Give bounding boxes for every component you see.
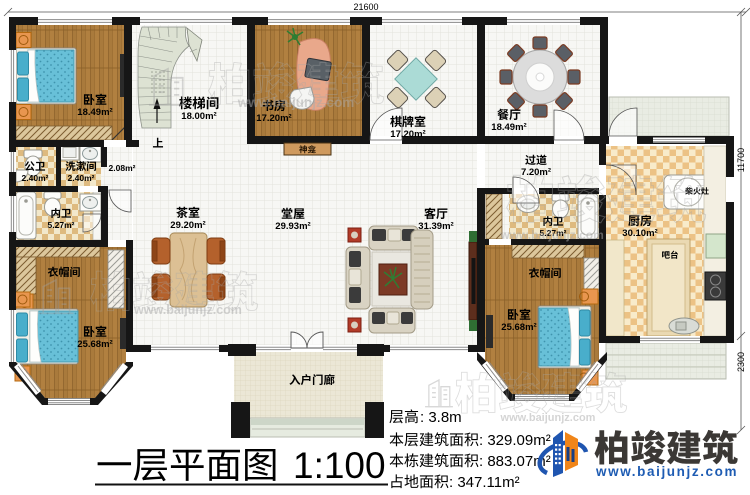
svg-text:17.20m²: 17.20m² [256, 113, 291, 124]
svg-text:18.49m²: 18.49m² [77, 107, 112, 118]
svg-text:2300: 2300 [736, 352, 746, 372]
svg-text:21600: 21600 [353, 2, 378, 12]
svg-text:5.27m²: 5.27m² [48, 220, 75, 230]
svg-text:2.40m²: 2.40m² [22, 173, 49, 183]
svg-text:www.baijunjz.com: www.baijunjz.com [595, 464, 738, 479]
svg-text:www.baijunjz.com: www.baijunjz.com [500, 412, 596, 424]
svg-text:: 3.8m: : 3.8m [420, 409, 462, 426]
svg-text:30.10m²: 30.10m² [622, 228, 657, 239]
svg-text:29.20m²: 29.20m² [170, 220, 205, 231]
svg-text:www.baijunjz.com: www.baijunjz.com [237, 95, 355, 110]
svg-text:18.00m²: 18.00m² [181, 111, 216, 122]
svg-text:18.49m²: 18.49m² [491, 122, 526, 133]
svg-text:11700: 11700 [736, 148, 746, 172]
svg-text:17.20m²: 17.20m² [390, 129, 425, 140]
svg-text:www.baijunjz.com: www.baijunjz.com [499, 228, 604, 242]
svg-text:29.93m²: 29.93m² [275, 221, 310, 232]
svg-text:2.40m²: 2.40m² [68, 173, 95, 183]
svg-text:1:100: 1:100 [293, 445, 386, 486]
svg-text:7.20m²: 7.20m² [521, 167, 551, 178]
svg-text:2.08m²: 2.08m² [109, 163, 136, 173]
svg-text:www.baijunjz.com: www.baijunjz.com [133, 303, 242, 317]
svg-text:: 347.11m²: : 347.11m² [449, 474, 520, 491]
svg-text:: 329.09m²: : 329.09m² [479, 432, 551, 449]
svg-text:25.68m²: 25.68m² [501, 322, 536, 333]
svg-text:25.68m²: 25.68m² [77, 339, 112, 350]
svg-text:31.39m²: 31.39m² [418, 221, 453, 232]
